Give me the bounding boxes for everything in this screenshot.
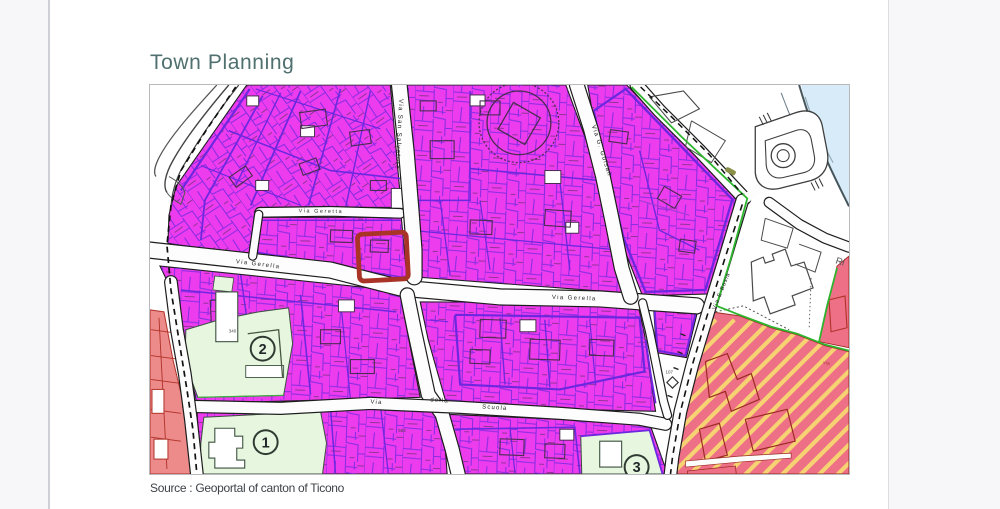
svg-text:della: della xyxy=(430,397,449,404)
svg-text:3: 3 xyxy=(633,460,641,474)
svg-text:107: 107 xyxy=(666,370,674,375)
svg-text:1: 1 xyxy=(262,435,270,451)
svg-text:2: 2 xyxy=(259,342,267,358)
svg-text:Via Geretta: Via Geretta xyxy=(299,208,344,215)
svg-text:584: 584 xyxy=(398,428,406,433)
svg-text:340: 340 xyxy=(229,329,237,334)
svg-text:Via: Via xyxy=(370,399,383,406)
